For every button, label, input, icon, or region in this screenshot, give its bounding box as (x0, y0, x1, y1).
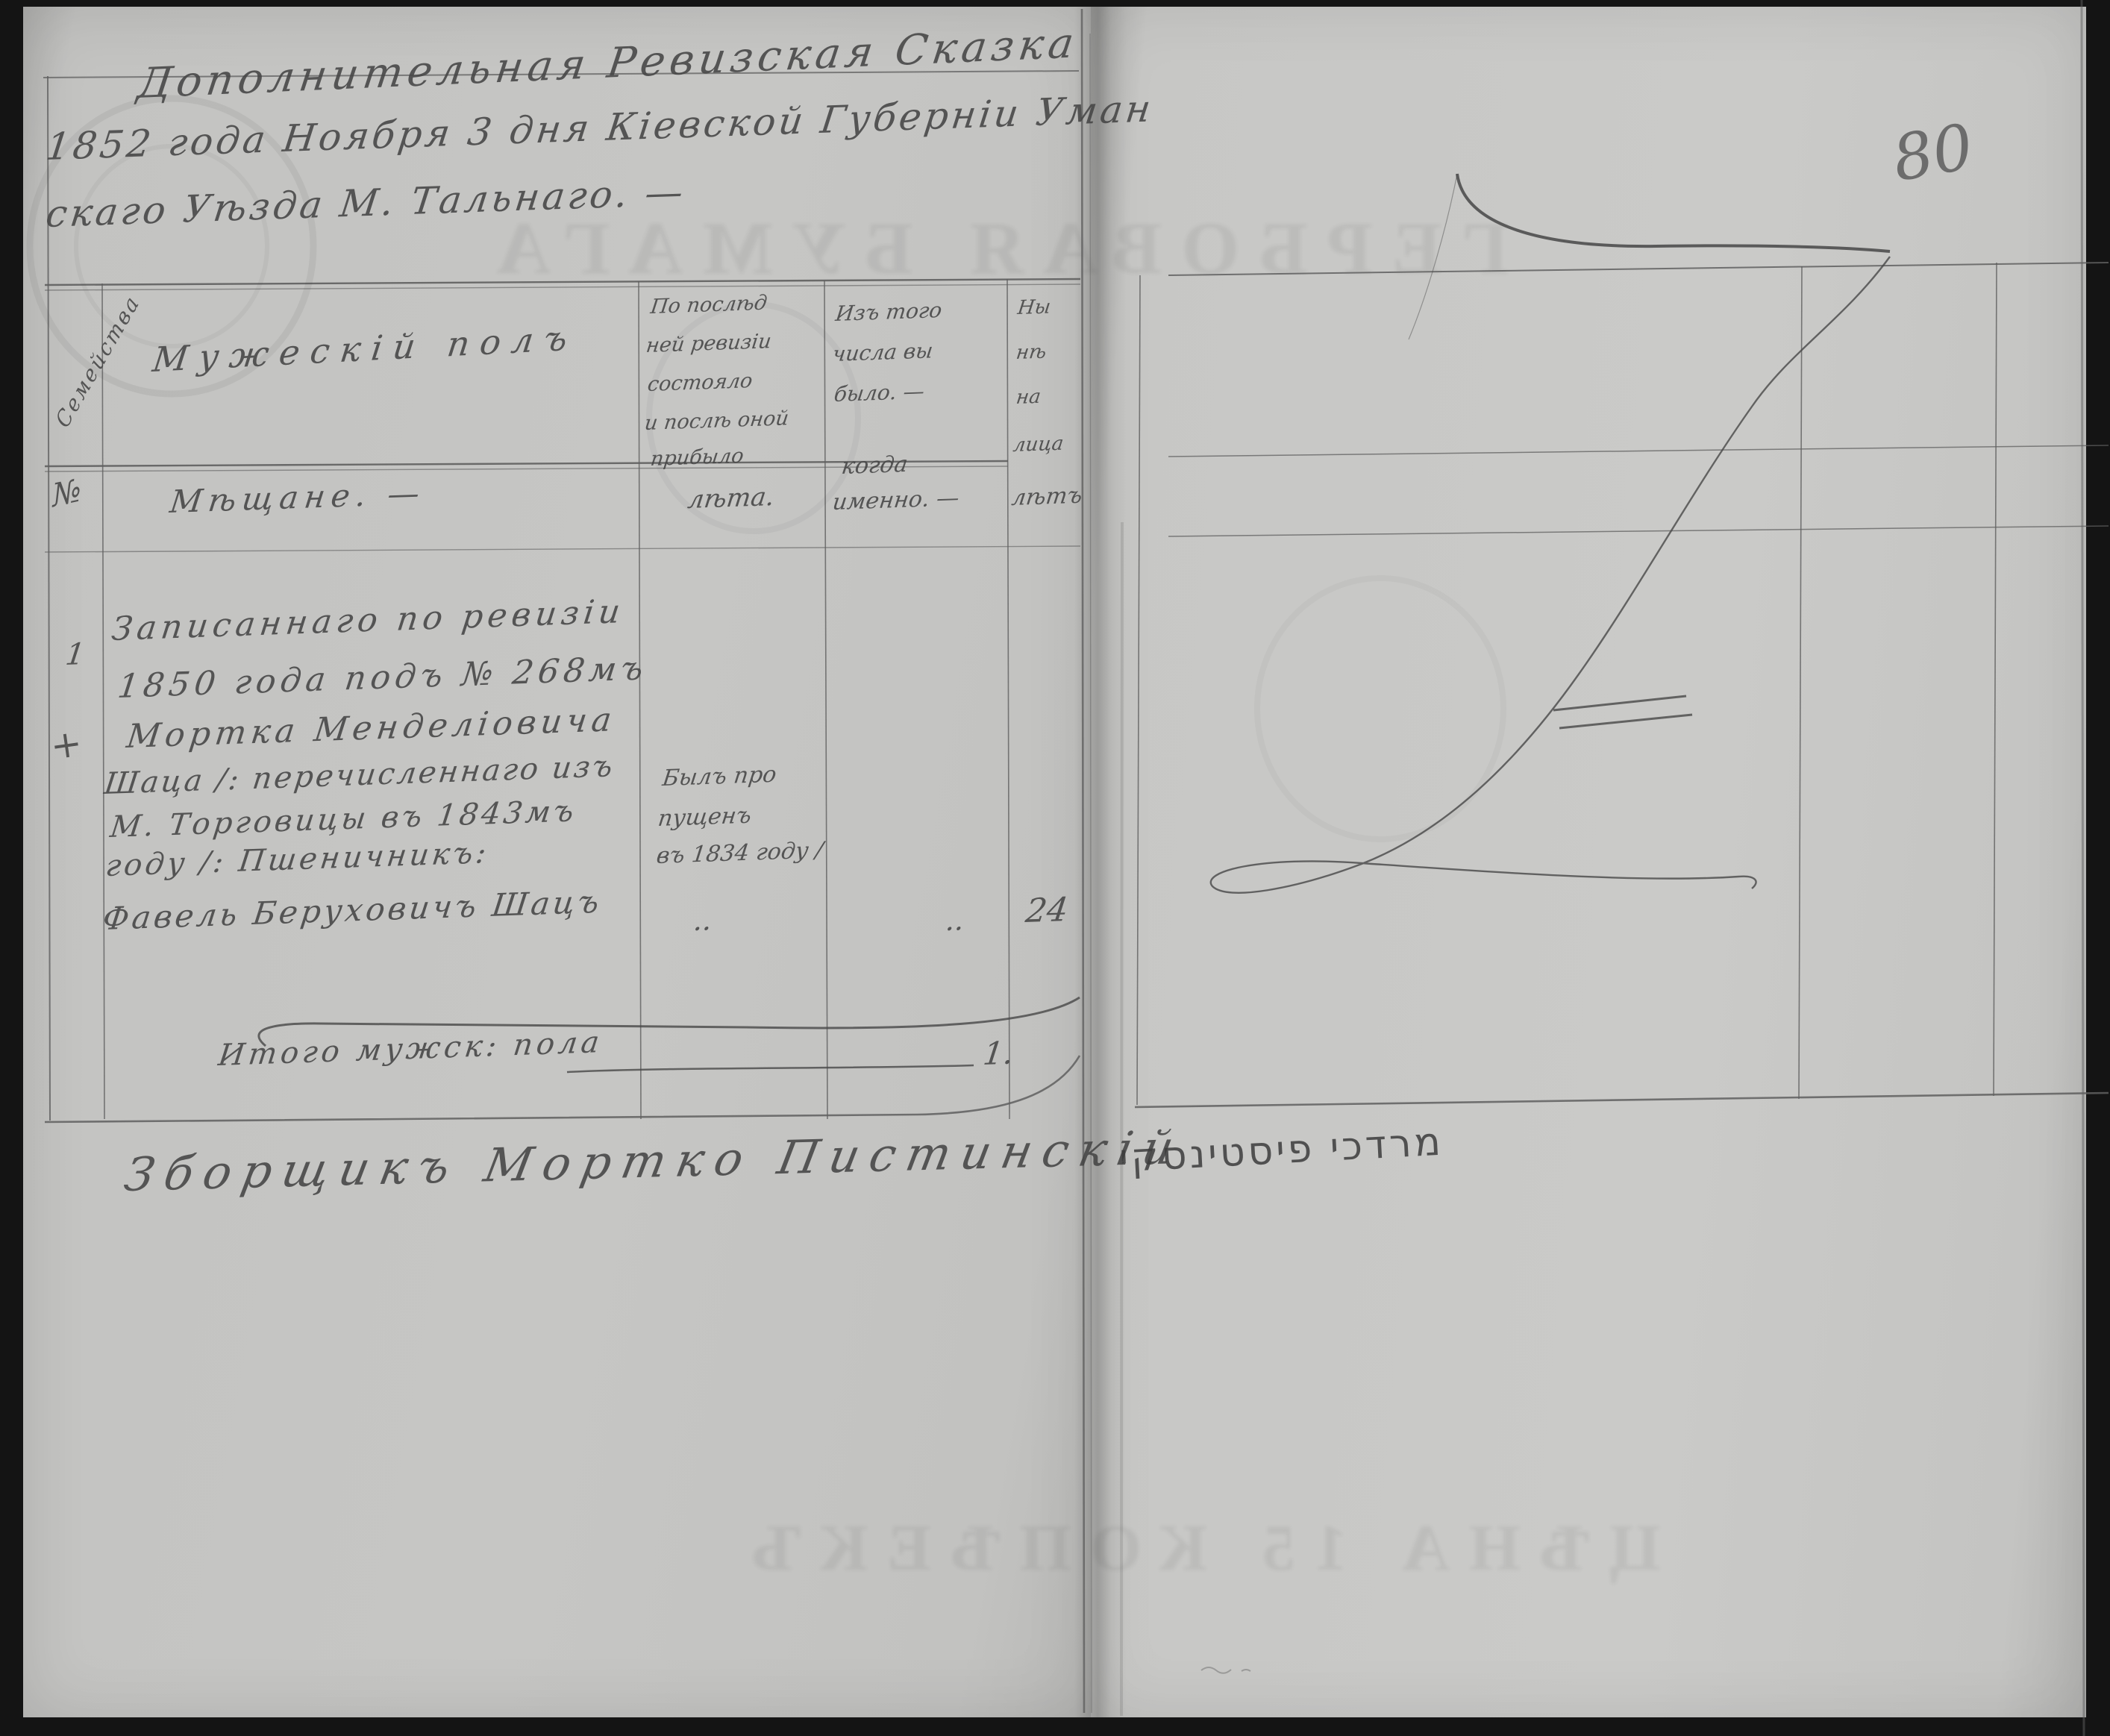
entry-note-line: пущенъ (657, 803, 753, 832)
folio-number: 80 (1887, 110, 1978, 195)
column-header-present-line: Ны (1016, 295, 1052, 319)
entry-check-mark: + (48, 721, 85, 768)
total-row-value: 1. (981, 1035, 1015, 1072)
column-header-departed-line: было. — (833, 379, 926, 407)
entry-note-line: Былъ про (661, 762, 778, 792)
column-header-present-line: нѣ (1015, 341, 1048, 364)
column-subheader-years: лѣта. (686, 482, 776, 515)
column-header-prev-revision-line: прибыло (649, 445, 745, 471)
stamped-paper-watermark-bottom: ЦѢНА 15 КОПѢЕКЪ (731, 1511, 1660, 1586)
column-header-departed-line: Изъ того (834, 298, 943, 326)
column-subheader-when-line: когда (840, 451, 910, 480)
scan-edge-left (0, 0, 23, 1736)
scan-edge-right (2086, 0, 2110, 1736)
column-header-present-line: на (1015, 386, 1042, 409)
column-subheader-number: № (51, 471, 82, 515)
scan-edge-bottom (0, 1717, 2110, 1736)
scanned-revision-list-document: ГЕРБОВАЯ БУМАГА ЦѢНА 15 КОПѢЕКЪ (0, 0, 2110, 1736)
column-header-prev-revision-line: состояло (646, 369, 754, 396)
column-header-prev-revision-line: ней ревизіи (645, 330, 773, 357)
column-subheader-when-line: именно. — (831, 485, 961, 516)
column-header-present-line: лица (1012, 433, 1065, 457)
column-subheader-years-now: лѣтъ (1010, 483, 1084, 511)
column-header-prev-revision-line: По послѣд (649, 292, 768, 319)
entry-age-value: 24 (1024, 891, 1071, 930)
stamped-paper-watermark-top: ГЕРБОВАЯ БУМАГА (478, 205, 1509, 291)
scan-edge-top (0, 0, 2110, 7)
column-header-departed-line: числа вы (831, 338, 934, 366)
